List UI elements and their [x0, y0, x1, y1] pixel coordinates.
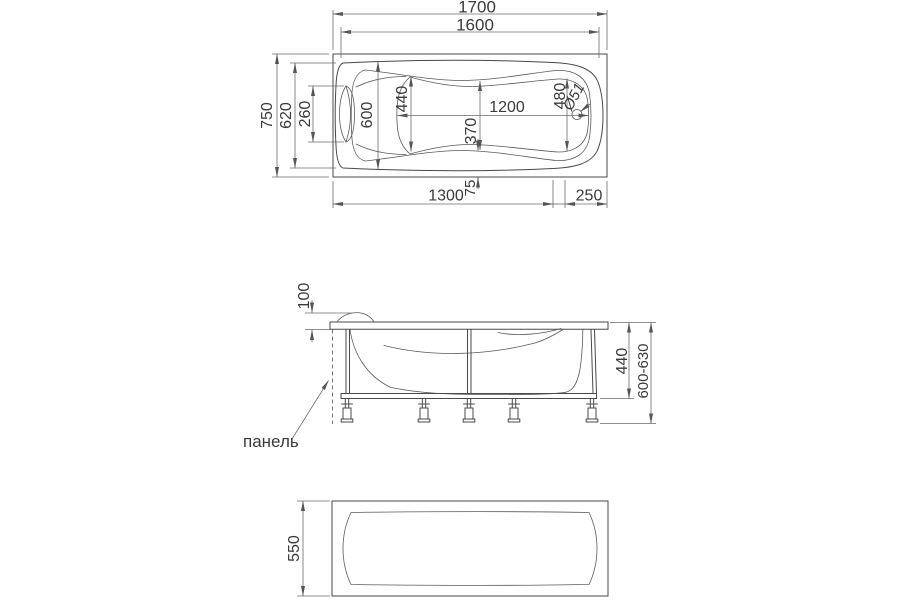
- headrest-sweep-top: [356, 77, 406, 88]
- dim-rim-width-label: 620: [278, 102, 295, 129]
- dim-bottom-main-label: 1300: [428, 188, 464, 205]
- dim-rim-length-label: 1600: [456, 16, 494, 35]
- top-view: 1700 1600 750 620 260: [259, 0, 607, 208]
- dim-overall-width-label: 750: [259, 102, 276, 129]
- side-view: 100 440 600-630 панель: [243, 283, 656, 451]
- technical-drawing-canvas: 1700 1600 750 620 260: [0, 0, 900, 600]
- dim-adjustable-height-label: 600-630: [635, 343, 652, 398]
- support-frame: [341, 330, 598, 423]
- dim-basin-width-mid-label: 370: [463, 118, 480, 145]
- frame-leg: [463, 399, 475, 423]
- dim-basin-width-foot: 480: [552, 79, 569, 152]
- rim-profile: [330, 322, 608, 329]
- frame-leg: [341, 399, 353, 423]
- frame-leg: [586, 399, 598, 423]
- dim-frame-height-label: 440: [614, 348, 631, 375]
- dim-overall-length-label: 1700: [458, 0, 496, 17]
- headrest-pillow-inner-line: [346, 86, 351, 142]
- dim-rim-drop-label: 100: [296, 283, 313, 310]
- headrest-sweep-bottom: [356, 144, 406, 155]
- backrest-bump: [337, 313, 374, 322]
- dim-basin-width-head-label: 440: [394, 86, 411, 113]
- dim-inner-width-head-label: 600: [359, 102, 376, 129]
- dim-rim-drop: 100: [296, 283, 352, 342]
- headrest-pillow: [340, 86, 355, 142]
- panel-callout: панель: [243, 381, 329, 452]
- dim-basin-length-label: 1200: [489, 99, 525, 116]
- dim-headrest: 260: [297, 86, 344, 142]
- dim-headrest-label: 260: [297, 101, 314, 128]
- panel-inner-outline: [343, 512, 597, 586]
- tub-profile: [350, 330, 583, 395]
- frame-leg: [418, 399, 430, 423]
- front-view: 550: [286, 501, 608, 596]
- dim-bottom-small-label: 75: [462, 180, 479, 197]
- dim-panel-height: 550: [286, 501, 330, 596]
- dim-bottom-end-label: 250: [576, 188, 603, 205]
- panel-outer-rect: [332, 501, 608, 596]
- panel-label: панель: [243, 432, 299, 451]
- far-rim-curve: [384, 330, 563, 354]
- dim-panel-height-label: 550: [286, 535, 303, 562]
- dim-bottom-row: 1300 250 75: [333, 139, 607, 208]
- dim-rim-length: 1600: [341, 16, 599, 59]
- dim-inner-width-head: 600: [359, 62, 378, 170]
- frame-leg: [508, 399, 520, 423]
